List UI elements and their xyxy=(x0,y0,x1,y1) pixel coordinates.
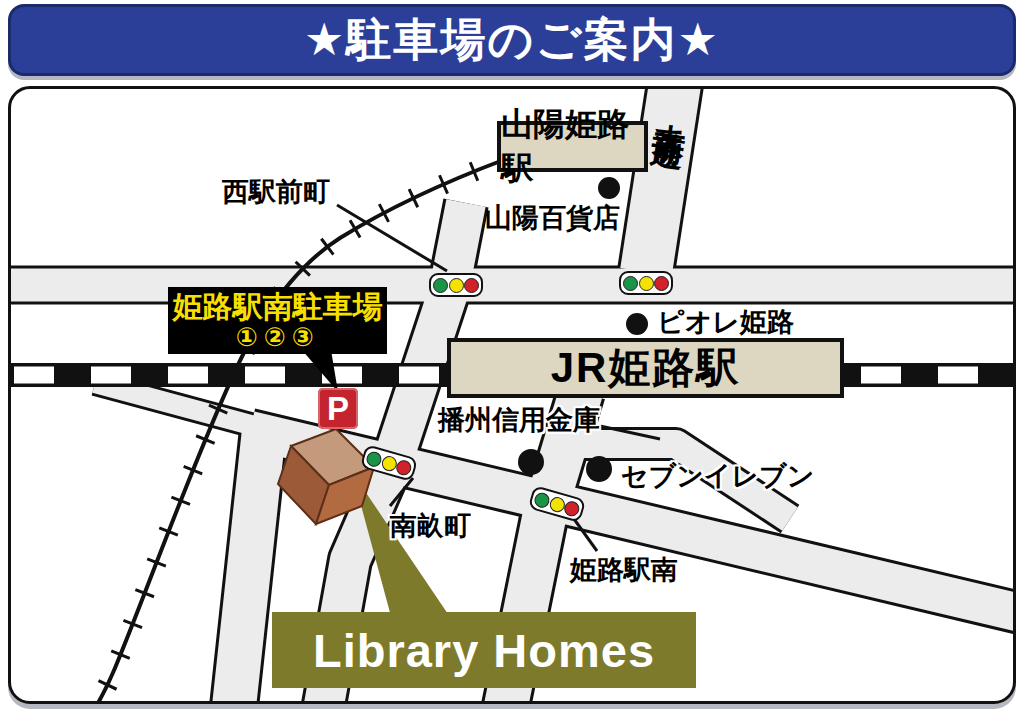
area-label-himejieki-minami: 姫路駅南 xyxy=(570,552,678,588)
yellow-light xyxy=(449,278,464,293)
title-banner: ★駐車場のご案内★ xyxy=(8,4,1016,76)
parking-callout-name: 姫路駅南駐車場 xyxy=(173,290,383,323)
area-label-nanaze: 南畝町 xyxy=(390,508,471,544)
parking-callout: 姫路駅南駐車場 ①②③ xyxy=(168,287,387,354)
leader-nishiekimae xyxy=(337,205,447,271)
yellow-light xyxy=(639,276,654,291)
traffic-light-west xyxy=(429,273,483,297)
library-homes-box: Library Homes xyxy=(272,612,696,688)
red-light xyxy=(654,276,669,291)
library-homes-label: Library Homes xyxy=(313,623,655,678)
page-title: ★駐車場のご案内★ xyxy=(304,10,720,70)
road-narrow-west xyxy=(95,383,262,428)
poi-label-seven-eleven: セブンイレブン xyxy=(621,458,814,494)
jr-himeji-station-box: JR姫路駅 xyxy=(447,338,844,398)
green-light xyxy=(433,278,448,293)
poi-label-sanyo-dept: 山陽百貨店 xyxy=(485,200,620,236)
road-south-leg xyxy=(233,430,264,701)
green-light xyxy=(365,449,384,468)
poi-label-banshu: 播州信用金庫 xyxy=(438,402,600,438)
red-light xyxy=(563,499,582,518)
sanyo-himeji-station-box: 山陽姫路駅 xyxy=(497,121,648,172)
piole-dot xyxy=(626,313,648,335)
sanyo-himeji-station-label: 山陽姫路駅 xyxy=(501,103,644,191)
poi-label-piole: ピオレ姫路 xyxy=(657,304,794,340)
area-label-nishiekimae: 西駅前町 xyxy=(222,174,330,210)
traffic-light-otemae xyxy=(619,271,673,295)
road-label-otemae: 大手前通り xyxy=(644,95,697,158)
red-light xyxy=(395,458,414,477)
jr-himeji-station-label: JR姫路駅 xyxy=(551,340,741,396)
parking-icon: P xyxy=(318,388,358,429)
banshu-dot xyxy=(518,449,544,475)
seven-eleven-dot xyxy=(586,456,612,482)
green-light xyxy=(533,490,552,509)
parking-guide-map: ★駐車場のご案内★ xyxy=(0,0,1024,712)
red-light xyxy=(464,278,479,293)
parking-callout-numbers: ①②③ xyxy=(235,323,319,351)
green-light xyxy=(623,276,638,291)
